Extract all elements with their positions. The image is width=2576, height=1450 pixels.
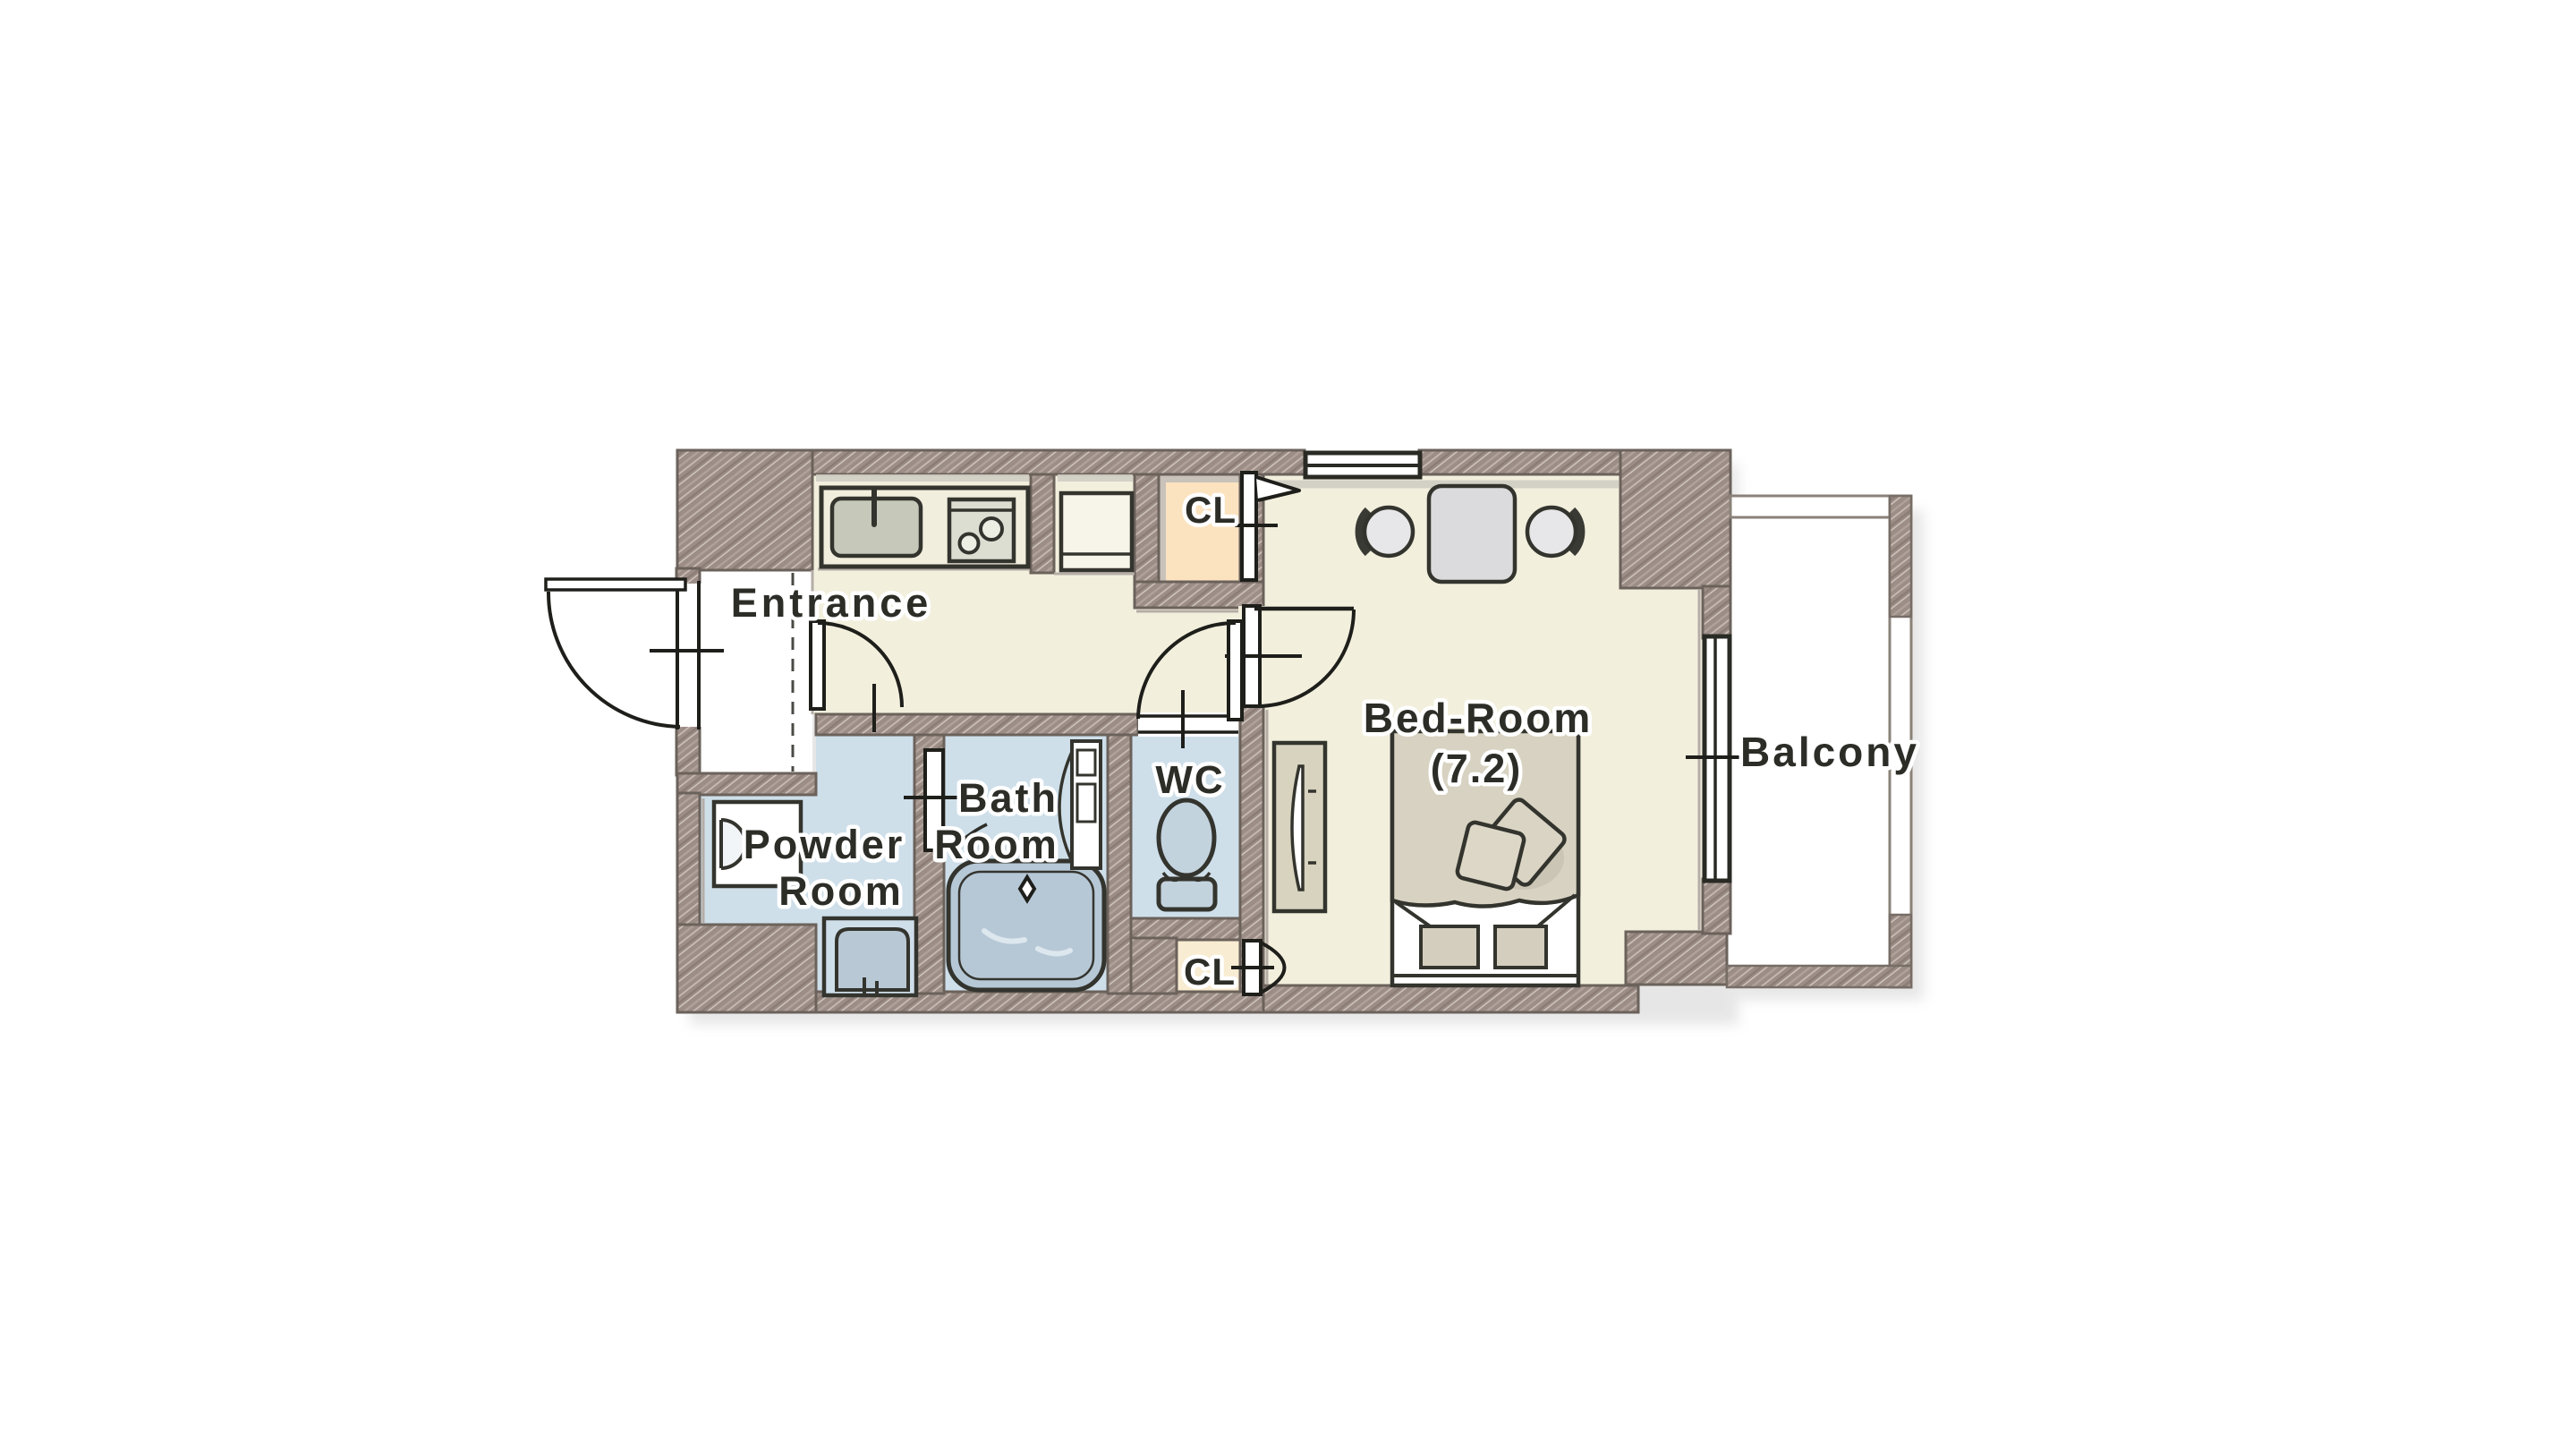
svg-text:Entrance: Entrance [731, 580, 932, 626]
svg-text:WC: WC [1155, 758, 1224, 802]
svg-text:Bed-Room: Bed-Room [1364, 695, 1594, 741]
svg-text:CL: CL [1185, 489, 1237, 531]
svg-text:Bath: Bath [958, 775, 1058, 821]
svg-text:CL: CL [1184, 951, 1236, 993]
svg-text:Room: Room [934, 822, 1059, 867]
svg-text:Balcony: Balcony [1740, 729, 1919, 775]
svg-text:Room: Room [778, 868, 904, 914]
svg-text:Powder: Powder [744, 822, 905, 867]
svg-text:(7.2): (7.2) [1431, 746, 1523, 791]
